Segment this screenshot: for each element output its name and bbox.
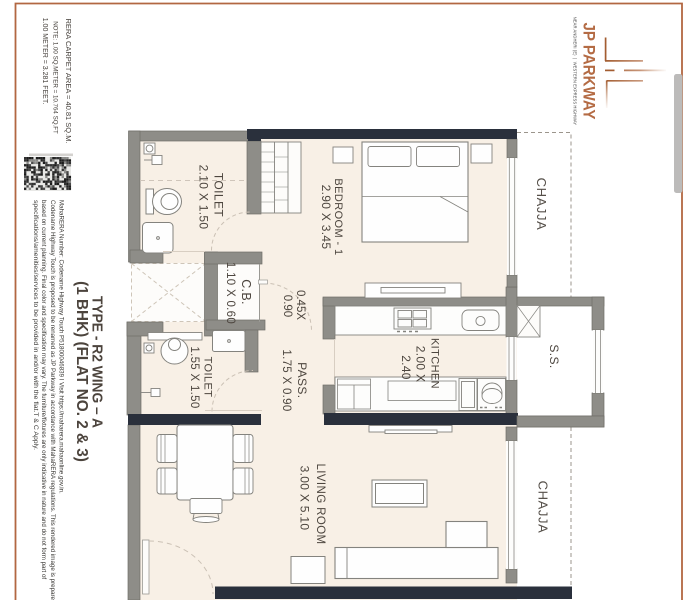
svg-text:NEAR ANDHERI (E) | WESTERN E: NEAR ANDHERI (E) | WESTERN EXPRESS HIGHW… [573, 17, 578, 126]
svg-text:based on current planning. Fin: based on current planning. Final color a… [40, 200, 47, 579]
svg-text:LIVING ROOM: LIVING ROOM [314, 463, 326, 544]
svg-text:specifications/amenities/servi: specifications/amenities/services to be … [32, 200, 39, 450]
svg-text:CHAJJA: CHAJJA [535, 481, 550, 534]
svg-text:KITCHEN: KITCHEN [429, 338, 441, 389]
svg-text:JP PARKWAY: JP PARKWAY [580, 23, 599, 121]
svg-text:3.00 X 5.10: 3.00 X 5.10 [297, 466, 311, 531]
svg-text:MahaRERA Number: Codename High: MahaRERA Number: Codename Highway Touch … [58, 200, 65, 494]
svg-text:NOTE: 1.00 SQ.METER = 10.764 S: NOTE: 1.00 SQ.METER = 10.764 SQ.FT [52, 21, 59, 134]
svg-text:PASS.: PASS. [295, 362, 309, 398]
svg-text:2.40: 2.40 [399, 355, 413, 380]
svg-text:1.55 X 1.50: 1.55 X 1.50 [188, 346, 200, 408]
svg-text:RERA CARPET AREA = 40.81 SQ.M.: RERA CARPET AREA = 40.81 SQ.M. [64, 18, 73, 143]
svg-text:2.10 X 1.50: 2.10 X 1.50 [196, 165, 210, 230]
svg-text:CHAJJA: CHAJJA [534, 178, 549, 231]
svg-text:2.90 X 3.45: 2.90 X 3.45 [319, 185, 333, 250]
svg-text:S.S.: S.S. [547, 344, 561, 368]
svg-text:BEDROOM - 1: BEDROOM - 1 [332, 178, 344, 255]
svg-text:0.90: 0.90 [281, 295, 293, 317]
svg-text:TOILET: TOILET [212, 173, 226, 217]
svg-text:1.00 METER = 3.281 FEET.: 1.00 METER = 3.281 FEET. [41, 18, 48, 105]
svg-text:TYPE - R2 WING – A: TYPE - R2 WING – A [89, 296, 106, 428]
svg-text:(1 BHK) (FLAT NO. 2 & 3): (1 BHK) (FLAT NO. 2 & 3) [73, 281, 90, 462]
svg-text:2.00 X: 2.00 X [414, 346, 428, 383]
svg-text:0.45X: 0.45X [294, 290, 306, 320]
svg-text:1.10 X 0.60: 1.10 X 0.60 [224, 262, 236, 324]
svg-text:Codename Highway Touch is prop: Codename Highway Touch is proposed to be… [49, 200, 56, 600]
svg-text:TOILET: TOILET [202, 357, 214, 398]
svg-text:1.75 X 0.90: 1.75 X 0.90 [280, 349, 292, 411]
svg-text:C.B.: C.B. [239, 279, 253, 305]
